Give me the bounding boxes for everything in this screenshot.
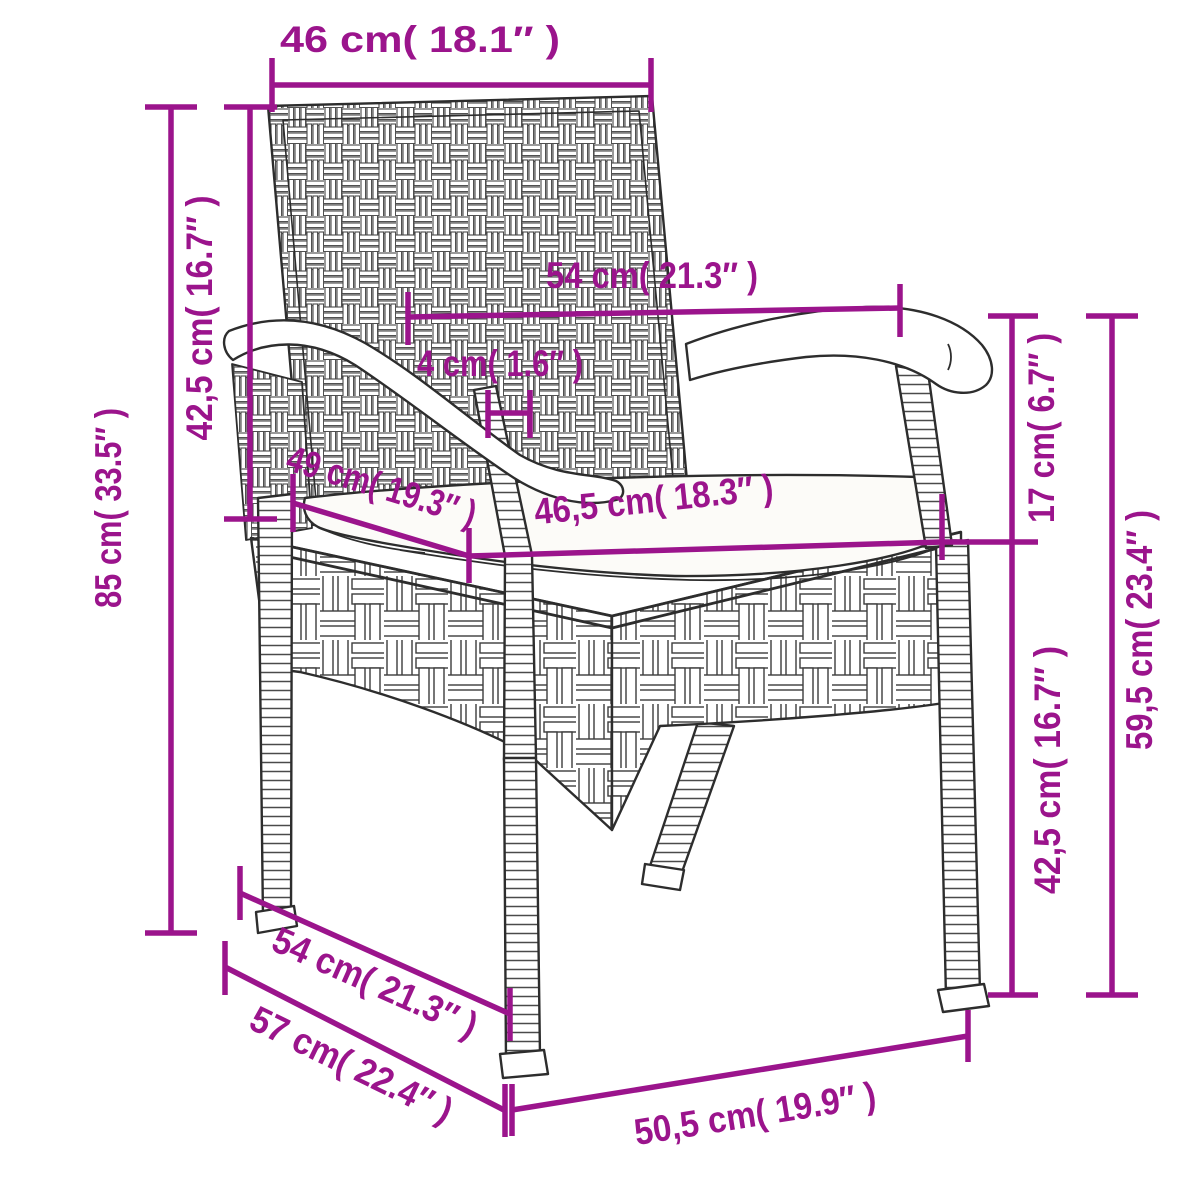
label-seat-height: 42,5 cm( 16.7″ ) [1027,646,1068,894]
label-seat-to-armrest: 17 cm( 6.7″ ) [1021,333,1062,523]
label-pole-thickness: 4 cm( 1.6″ ) [417,343,583,384]
dimension-diagram-page: 46 cm( 18.1″ ) 42,5 cm( 16.7″ ) 85 cm( 3… [0,0,1200,1200]
label-armrest-span: 54 cm( 21.3″ ) [546,255,758,296]
chair-base-left-face [251,538,612,830]
chair-right-leg-foot [938,984,989,1012]
label-backrest-width: 46 cm( 18.1″ ) [280,19,560,60]
chair-left-leg [258,494,292,920]
chair-rear-leg [650,722,734,872]
chair-illustration [224,96,992,1078]
chair-front-leg-foot [500,1050,548,1078]
label-armrest-height: 59,5 cm( 23.4″ ) [1119,510,1160,750]
chair-rear-leg-foot [642,864,684,890]
label-total-height: 85 cm( 33.5″ ) [88,408,129,608]
chair-dimension-diagram: 46 cm( 18.1″ ) 42,5 cm( 16.7″ ) 85 cm( 3… [0,0,1200,1200]
chair-right-leg [936,540,980,998]
right-armrest [686,307,992,393]
label-backrest-height: 42,5 cm( 16.7″ ) [179,196,220,441]
